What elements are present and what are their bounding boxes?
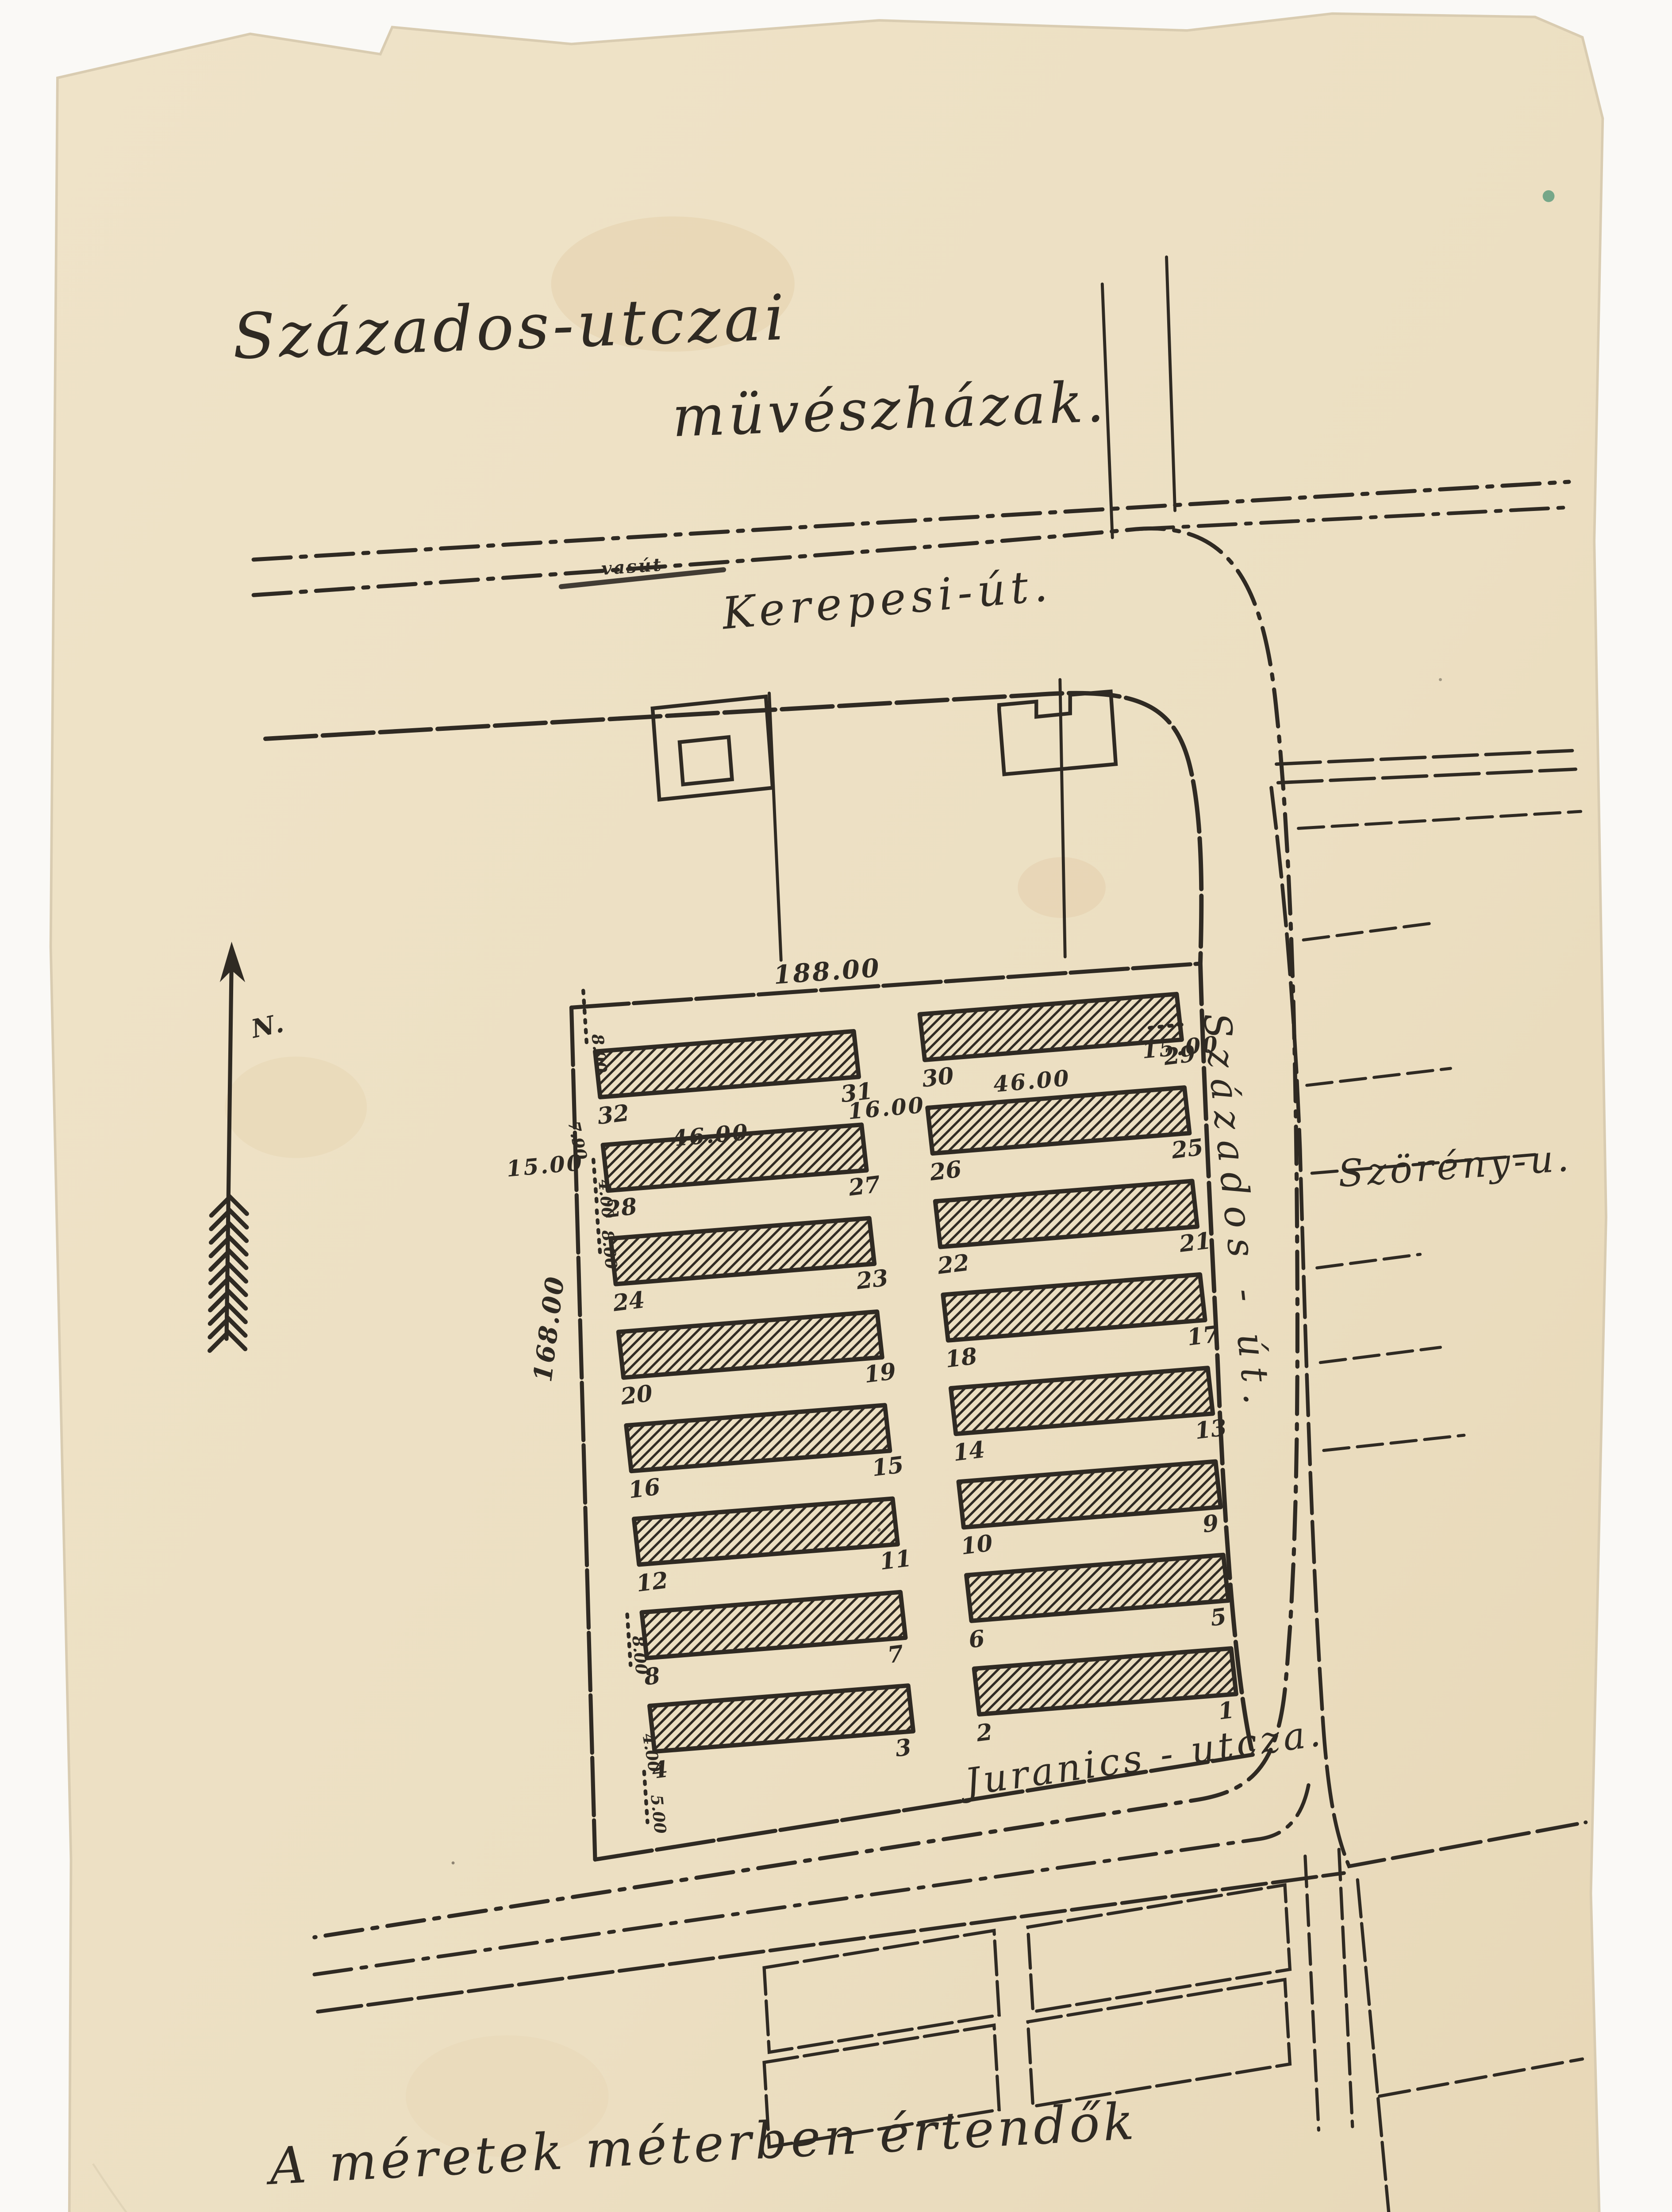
dim-north-margin: 8.00	[588, 1033, 611, 1074]
building-number: 13	[1193, 1414, 1228, 1444]
building-number: 32	[596, 1100, 631, 1130]
green-speck	[1543, 190, 1555, 202]
building-number: 3	[894, 1734, 913, 1763]
building-number: 6	[967, 1625, 986, 1654]
dim-row-gap-b: 8.00	[598, 1229, 621, 1270]
building-number: 7	[886, 1640, 905, 1669]
building-number: 24	[611, 1286, 646, 1317]
building-number: 30	[921, 1063, 956, 1093]
building-number: 27	[847, 1171, 882, 1201]
site-plan-drawing: 3231302928272625242322212019181716151413…	[0, 0, 1672, 2212]
building-number: 20	[619, 1380, 654, 1410]
building-number: 23	[854, 1265, 890, 1295]
dim-south-c: 5.00	[647, 1794, 670, 1835]
building-number: 17	[1186, 1321, 1221, 1351]
building-number: 5	[1209, 1603, 1228, 1632]
building-number: 1	[1217, 1697, 1236, 1725]
building-number: 14	[952, 1436, 987, 1467]
building-number: 10	[959, 1530, 994, 1560]
building-number: 18	[944, 1343, 979, 1373]
building-number: 12	[635, 1567, 670, 1597]
building-number: 19	[863, 1358, 898, 1388]
building-number: 21	[1177, 1228, 1213, 1258]
building-number: 22	[936, 1249, 971, 1279]
building-number: 2	[975, 1719, 994, 1747]
building-number: 26	[928, 1156, 963, 1186]
scanned-site-plan: 3231302928272625242322212019181716151413…	[0, 0, 1672, 2212]
building-number: 9	[1201, 1510, 1220, 1538]
building-number: 15	[870, 1452, 905, 1482]
dim-row-gap-a: 4.00	[595, 1179, 618, 1219]
building-number: 11	[878, 1545, 913, 1575]
building-number: 16	[627, 1474, 662, 1504]
dim-south-a: 8.00	[628, 1634, 651, 1675]
building-number: 25	[1170, 1134, 1205, 1164]
